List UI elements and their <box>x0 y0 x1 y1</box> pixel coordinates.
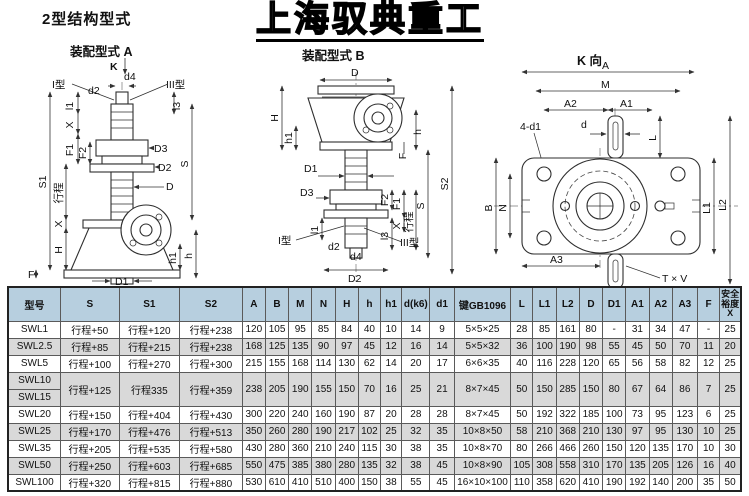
drawing-assembly-b: D H h1 h F D1 D3 <box>256 54 482 286</box>
page-title: 2型结构型式 <box>42 8 131 29</box>
model-cell: SWL20 <box>8 406 61 423</box>
table-cell: 400 <box>335 474 358 491</box>
column-header: D <box>579 287 602 321</box>
dim-label-a1: A1 <box>620 98 633 110</box>
table-cell: 16 <box>381 372 402 406</box>
table-cell: 50 <box>649 338 672 355</box>
table-cell: 100 <box>603 406 626 423</box>
table-cell: 360 <box>289 440 312 457</box>
dim-label-d-dia: D <box>351 67 359 79</box>
table-cell: 58 <box>511 423 533 440</box>
table-cell: 200 <box>672 474 697 491</box>
table-cell: 行程+85 <box>61 338 120 355</box>
table-cell: 130 <box>672 423 697 440</box>
table-cell: 行程+250 <box>61 457 120 474</box>
table-cell: 35 <box>697 474 719 491</box>
dim-label-a2: A2 <box>564 98 577 110</box>
table-cell: 50 <box>720 474 741 491</box>
dim-label-d2-dia: D2 <box>158 162 172 174</box>
table-cell: 14 <box>430 338 454 355</box>
column-header: N <box>312 287 335 321</box>
table-cell: 135 <box>289 338 312 355</box>
table-cell: 190 <box>289 372 312 406</box>
column-header: L2 <box>556 287 579 321</box>
dim-label-x: X <box>391 222 403 229</box>
dim-label-k: K <box>110 61 118 73</box>
table-cell: 155 <box>265 355 288 372</box>
table-cell: 10×8×50 <box>454 423 511 440</box>
table-cell: 40 <box>720 457 741 474</box>
column-header: 键GB1096 <box>454 287 511 321</box>
table-cell: 30 <box>381 440 402 457</box>
dim-label-s2: S2 <box>439 177 451 190</box>
table-cell: 102 <box>358 423 380 440</box>
dim-label-h-big: H <box>53 246 65 254</box>
table-cell: 28 <box>402 406 430 423</box>
type-iii-label: III型 <box>166 78 185 91</box>
table-cell: 行程+125 <box>61 372 120 406</box>
table-cell: 12 <box>697 355 719 372</box>
table-cell: 14 <box>381 355 402 372</box>
column-header: S2 <box>180 287 243 321</box>
table-cell: 558 <box>556 457 579 474</box>
table-cell: 25 <box>720 355 741 372</box>
table-cell: 32 <box>402 423 430 440</box>
table-cell: 55 <box>603 338 626 355</box>
table-cell: 410 <box>579 474 602 491</box>
table-cell: 105 <box>265 321 288 338</box>
table-cell: 80 <box>579 321 602 338</box>
dim-label-d2-dia: D2 <box>348 273 362 285</box>
table-cell: 97 <box>335 338 358 355</box>
table-cell: 行程+430 <box>180 406 243 423</box>
table-cell: 85 <box>312 321 335 338</box>
table-cell: 220 <box>265 406 288 423</box>
table-cell: 行程+685 <box>180 457 243 474</box>
table-cell: 10 <box>697 440 719 457</box>
table-cell: 25 <box>381 423 402 440</box>
dim-label-f: F <box>397 153 409 159</box>
table-cell: 行程+513 <box>180 423 243 440</box>
column-header: H <box>335 287 358 321</box>
column-header: S1 <box>119 287 180 321</box>
table-cell: 17 <box>430 355 454 372</box>
column-header: d(k6) <box>402 287 430 321</box>
table-cell: 45 <box>430 474 454 491</box>
dim-label-f: F <box>28 269 34 281</box>
table-cell: 80 <box>511 440 533 457</box>
table-cell: 120 <box>626 440 649 457</box>
table-cell: 150 <box>603 440 626 457</box>
table-cell: 120 <box>579 355 602 372</box>
column-header: F <box>697 287 719 321</box>
table-cell: 56 <box>626 355 649 372</box>
table-cell: 510 <box>312 474 335 491</box>
table-cell: 55 <box>402 474 430 491</box>
table-cell: 20 <box>402 355 430 372</box>
table-cell: 25 <box>720 372 741 406</box>
table-cell: 280 <box>289 423 312 440</box>
dim-label-d4: d4 <box>124 71 136 83</box>
column-header: A3 <box>672 287 697 321</box>
model-cell: SWL100 <box>8 474 61 491</box>
table-cell: 240 <box>335 440 358 457</box>
table-cell: 190 <box>335 406 358 423</box>
table-cell: 205 <box>649 457 672 474</box>
table-cell: 70 <box>672 338 697 355</box>
table-cell: 32 <box>381 457 402 474</box>
table-cell: 155 <box>312 372 335 406</box>
table-cell: 6 <box>697 406 719 423</box>
table-cell: 90 <box>312 338 335 355</box>
table-cell: 308 <box>533 457 556 474</box>
table-cell: 21 <box>430 372 454 406</box>
table-cell: 行程+603 <box>119 457 180 474</box>
table-cell: 210 <box>533 423 556 440</box>
table-cell: 120 <box>242 321 265 338</box>
table-cell: 行程+100 <box>61 355 120 372</box>
dim-label-d1: D1 <box>304 163 318 175</box>
table-cell: 190 <box>603 474 626 491</box>
table-cell: 45 <box>358 338 380 355</box>
table-cell: 135 <box>626 457 649 474</box>
table-cell: 行程+170 <box>61 423 120 440</box>
table-cell: 95 <box>649 423 672 440</box>
table-cell: 38 <box>381 474 402 491</box>
table-cell: 行程+270 <box>119 355 180 372</box>
table-cell: 610 <box>265 474 288 491</box>
table-cell: - <box>697 321 719 338</box>
dim-label-b: B <box>484 204 495 211</box>
model-cell: SWL5 <box>8 355 61 372</box>
dim-label-f2: F2 <box>379 194 391 206</box>
table-cell: 58 <box>649 355 672 372</box>
table-cell: 116 <box>533 355 556 372</box>
table-cell: 16 <box>697 457 719 474</box>
table-cell: 行程+238 <box>180 338 243 355</box>
table-cell: 25 <box>720 406 741 423</box>
table-cell: 97 <box>626 423 649 440</box>
table-cell: 10×8×70 <box>454 440 511 457</box>
table-cell: 110 <box>511 474 533 491</box>
table-cell: 126 <box>672 457 697 474</box>
column-header: M <box>289 287 312 321</box>
table-cell: 16×10×100 <box>454 474 511 491</box>
table-cell: 185 <box>579 406 602 423</box>
watermark-logo: 上海驭典重工 <box>256 2 484 42</box>
table-cell: 65 <box>603 355 626 372</box>
table-cell: 45 <box>430 457 454 474</box>
table-cell: 260 <box>579 440 602 457</box>
table-cell: 358 <box>533 474 556 491</box>
table-cell: 86 <box>672 372 697 406</box>
dim-label-stroke: 行程 <box>52 182 65 203</box>
table-cell: 87 <box>358 406 380 423</box>
dim-label-f1: F1 <box>391 198 403 210</box>
table-cell: 47 <box>672 321 697 338</box>
dim-label-d4: d4 <box>350 251 362 263</box>
table-cell: 28 <box>430 406 454 423</box>
column-header: D1 <box>603 287 626 321</box>
dim-label-l1: l1 <box>64 102 76 110</box>
table-cell: 38 <box>402 440 430 457</box>
dim-label-a3: A3 <box>550 254 563 266</box>
dim-label-d-dia: D <box>166 181 174 193</box>
table-cell: 170 <box>603 457 626 474</box>
model-cell: SWL1 <box>8 321 61 338</box>
table-cell: 135 <box>649 440 672 457</box>
drawing-assembly-a: K I型 d2 d4 III型 l1 X F1 <box>26 54 258 286</box>
table-cell: 67 <box>626 372 649 406</box>
table-cell: 228 <box>556 355 579 372</box>
table-cell: 190 <box>556 338 579 355</box>
model-cell: SWL25 <box>8 423 61 440</box>
table-cell: 168 <box>289 355 312 372</box>
table-cell: 8×7×45 <box>454 372 511 406</box>
table-cell: 30 <box>720 440 741 457</box>
dim-label-l2: L2 <box>717 199 729 211</box>
table-cell: 12 <box>381 338 402 355</box>
table-cell: 322 <box>556 406 579 423</box>
table-cell: 150 <box>358 474 380 491</box>
table-cell: 行程+205 <box>61 440 120 457</box>
dim-label-h1: h1 <box>283 132 295 144</box>
dim-label-h-small: h <box>412 129 424 135</box>
table-cell: 行程+120 <box>119 321 180 338</box>
table-cell: 50 <box>511 372 533 406</box>
column-header: S <box>61 287 120 321</box>
table-cell: 135 <box>358 457 380 474</box>
table-cell: 行程+238 <box>180 321 243 338</box>
table-cell: 385 <box>289 457 312 474</box>
column-header: h <box>358 287 380 321</box>
table-cell: 168 <box>242 338 265 355</box>
table-cell: 285 <box>556 372 579 406</box>
dim-label-x-top: X <box>64 121 76 128</box>
table-cell: 行程335 <box>119 372 180 406</box>
column-header: A <box>242 287 265 321</box>
table-cell: 70 <box>358 372 380 406</box>
table-cell: 行程+476 <box>119 423 180 440</box>
table-cell: 300 <box>242 406 265 423</box>
dim-label-x-mid: X <box>53 220 65 227</box>
type-iii-label: III型 <box>400 236 419 249</box>
table-cell: 9 <box>430 321 454 338</box>
table-cell: 350 <box>242 423 265 440</box>
column-header: d1 <box>430 287 454 321</box>
column-header: 安全 裕度 X <box>720 287 741 321</box>
dim-label-d2: d2 <box>88 85 100 97</box>
spec-table: 型号SS1S2ABMNHhh1d(k6)d1键GB1096LL1L2DD1A1A… <box>7 286 742 492</box>
table-cell: - <box>603 321 626 338</box>
table-cell: 40 <box>511 355 533 372</box>
column-header: 型号 <box>8 287 61 321</box>
dim-label-l1: l1 <box>309 226 321 234</box>
table-cell: 20 <box>381 406 402 423</box>
table-cell: 16 <box>402 338 430 355</box>
dim-label-l: L <box>647 135 659 141</box>
table-cell: 190 <box>312 423 335 440</box>
table-cell: 115 <box>358 440 380 457</box>
table-cell: 475 <box>265 457 288 474</box>
table-cell: 620 <box>556 474 579 491</box>
type-i-label: I型 <box>52 78 65 91</box>
table-cell: 35 <box>430 423 454 440</box>
table-cell: 240 <box>289 406 312 423</box>
table-cell: 123 <box>672 406 697 423</box>
table-cell: 20 <box>720 338 741 355</box>
table-cell: 行程+404 <box>119 406 180 423</box>
table-cell: 10 <box>381 321 402 338</box>
dim-label-4-d1: 4-d1 <box>520 121 541 133</box>
model-cell: SWL2.5 <box>8 338 61 355</box>
column-header: h1 <box>381 287 402 321</box>
table-cell: 550 <box>242 457 265 474</box>
table-cell: 5×5×32 <box>454 338 511 355</box>
column-header: L <box>511 287 533 321</box>
table-cell: 85 <box>533 321 556 338</box>
table-cell: 260 <box>265 423 288 440</box>
dim-label-d3: D3 <box>300 187 314 199</box>
model-cell: SWL35 <box>8 440 61 457</box>
dim-label-stroke: 行程 <box>402 211 415 232</box>
table-cell: 10×8×90 <box>454 457 511 474</box>
table-cell: 95 <box>289 321 312 338</box>
dim-label-s: S <box>179 160 191 167</box>
dim-label-l3: l3 <box>171 102 183 110</box>
table-cell: 45 <box>626 338 649 355</box>
table-cell: 行程+215 <box>119 338 180 355</box>
dim-label-d1: D1 <box>115 276 129 286</box>
column-header: B <box>265 287 288 321</box>
table-cell: 行程+535 <box>119 440 180 457</box>
table-cell: 31 <box>626 321 649 338</box>
table-cell: 310 <box>579 457 602 474</box>
table-cell: 25 <box>402 372 430 406</box>
table-cell: 95 <box>649 406 672 423</box>
table-cell: 28 <box>511 321 533 338</box>
dim-label-d3: D3 <box>154 143 168 155</box>
dim-label-n: N <box>497 204 509 212</box>
dim-label-f1: F1 <box>64 144 76 156</box>
table-cell: 10 <box>697 423 719 440</box>
dim-label-l1: L1 <box>701 202 713 214</box>
dim-label-h1: h1 <box>167 252 179 264</box>
table-cell: 280 <box>335 457 358 474</box>
model-cell: SWL50 <box>8 457 61 474</box>
table-cell: 62 <box>358 355 380 372</box>
table-cell: 466 <box>556 440 579 457</box>
table-cell: 192 <box>533 406 556 423</box>
table-cell: 215 <box>242 355 265 372</box>
table-cell: 161 <box>556 321 579 338</box>
table-cell: 150 <box>579 372 602 406</box>
table-cell: 217 <box>335 423 358 440</box>
table-cell: 35 <box>430 440 454 457</box>
table-cell: 125 <box>265 338 288 355</box>
table-cell: 84 <box>335 321 358 338</box>
table-cell: 170 <box>672 440 697 457</box>
table-cell: 160 <box>312 406 335 423</box>
table-cell: 368 <box>556 423 579 440</box>
dim-label-s: S <box>415 202 427 209</box>
table-cell: 8×7×45 <box>454 406 511 423</box>
table-cell: 行程+580 <box>180 440 243 457</box>
dim-label-d2: d2 <box>328 241 340 253</box>
column-header: L1 <box>533 287 556 321</box>
dim-label-h-small: h <box>183 253 195 259</box>
table-cell: 430 <box>242 440 265 457</box>
table-cell: 238 <box>242 372 265 406</box>
dim-label-m: M <box>601 79 610 91</box>
table-cell: 7 <box>697 372 719 406</box>
table-cell: 行程+359 <box>180 372 243 406</box>
dim-label-f2: F2 <box>77 147 89 159</box>
model-cell: SWL10 <box>8 372 61 389</box>
dim-label-s1: S1 <box>37 175 49 188</box>
table-cell: 38 <box>402 457 430 474</box>
table-cell: 140 <box>649 474 672 491</box>
table-cell: 行程+320 <box>61 474 120 491</box>
table-cell: 280 <box>265 440 288 457</box>
table-cell: 130 <box>603 423 626 440</box>
table-cell: 25 <box>720 321 741 338</box>
dim-label-d: d <box>581 119 587 131</box>
table-cell: 36 <box>511 338 533 355</box>
table-cell: 130 <box>335 355 358 372</box>
table-cell: 82 <box>672 355 697 372</box>
column-header: A2 <box>649 287 672 321</box>
table-cell: 50 <box>511 406 533 423</box>
table-cell: 11 <box>697 338 719 355</box>
table-cell: 105 <box>511 457 533 474</box>
dim-label-a: A <box>602 60 609 72</box>
table-cell: 80 <box>603 372 626 406</box>
table-cell: 行程+880 <box>180 474 243 491</box>
table-cell: 64 <box>649 372 672 406</box>
model-cell: SWL15 <box>8 389 61 406</box>
table-cell: 410 <box>289 474 312 491</box>
table-cell: 行程+815 <box>119 474 180 491</box>
table-cell: 行程+150 <box>61 406 120 423</box>
drawing-k-view: A M A2 A1 4-d1 d L <box>484 60 746 286</box>
column-header: A1 <box>626 287 649 321</box>
table-cell: 530 <box>242 474 265 491</box>
table-cell: 40 <box>358 321 380 338</box>
table-cell: 14 <box>402 321 430 338</box>
table-cell: 380 <box>312 457 335 474</box>
table-cell: 150 <box>335 372 358 406</box>
table-cell: 150 <box>533 372 556 406</box>
table-cell: 34 <box>649 321 672 338</box>
table-cell: 205 <box>265 372 288 406</box>
table-cell: 行程+50 <box>61 321 120 338</box>
table-cell: 5×5×25 <box>454 321 511 338</box>
dim-label-h-big: H <box>269 114 281 122</box>
table-cell: 210 <box>312 440 335 457</box>
table-cell: 210 <box>579 423 602 440</box>
table-cell: 6×6×35 <box>454 355 511 372</box>
catalog-page: 2型结构型式 上海驭典重工 装配型式 A 装配型式 B K 向 K I型 d2 … <box>0 0 749 496</box>
table-cell: 行程+300 <box>180 355 243 372</box>
type-i-label: I型 <box>278 234 291 247</box>
table-cell: 114 <box>312 355 335 372</box>
table-cell: 100 <box>533 338 556 355</box>
table-cell: 73 <box>626 406 649 423</box>
table-cell: 266 <box>533 440 556 457</box>
table-cell: 25 <box>720 423 741 440</box>
table-cell: 98 <box>579 338 602 355</box>
